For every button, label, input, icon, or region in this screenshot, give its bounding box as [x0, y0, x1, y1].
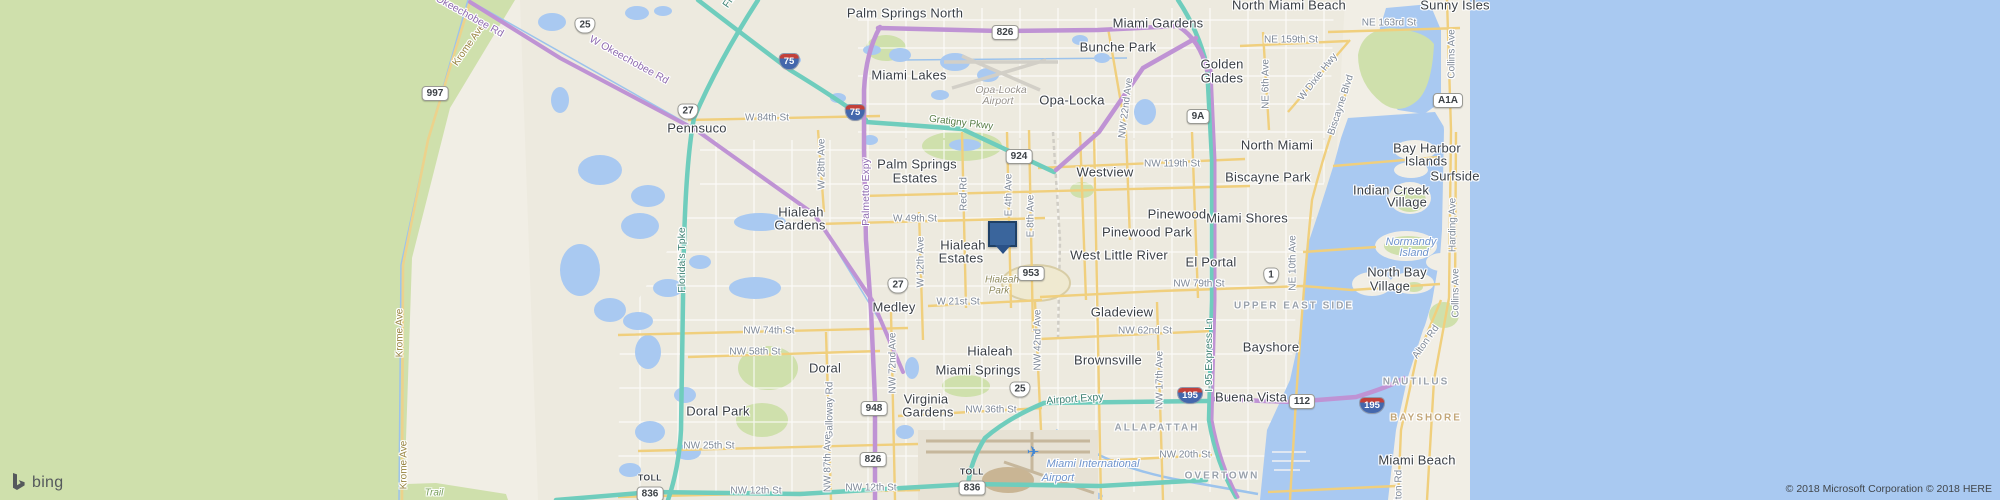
- bing-logo-text: bing: [32, 474, 63, 492]
- bing-logo[interactable]: bing: [12, 473, 63, 492]
- atlantic-ocean: [1466, 0, 2000, 500]
- miami-international-airport: [918, 430, 1098, 500]
- map-copyright: © 2018 Microsoft Corporation © 2018 HERE: [1786, 483, 1992, 495]
- location-pin[interactable]: [988, 221, 1017, 247]
- bing-icon: [12, 473, 27, 492]
- map-canvas[interactable]: Palm Springs NorthMiami GardensBunche Pa…: [0, 0, 2000, 500]
